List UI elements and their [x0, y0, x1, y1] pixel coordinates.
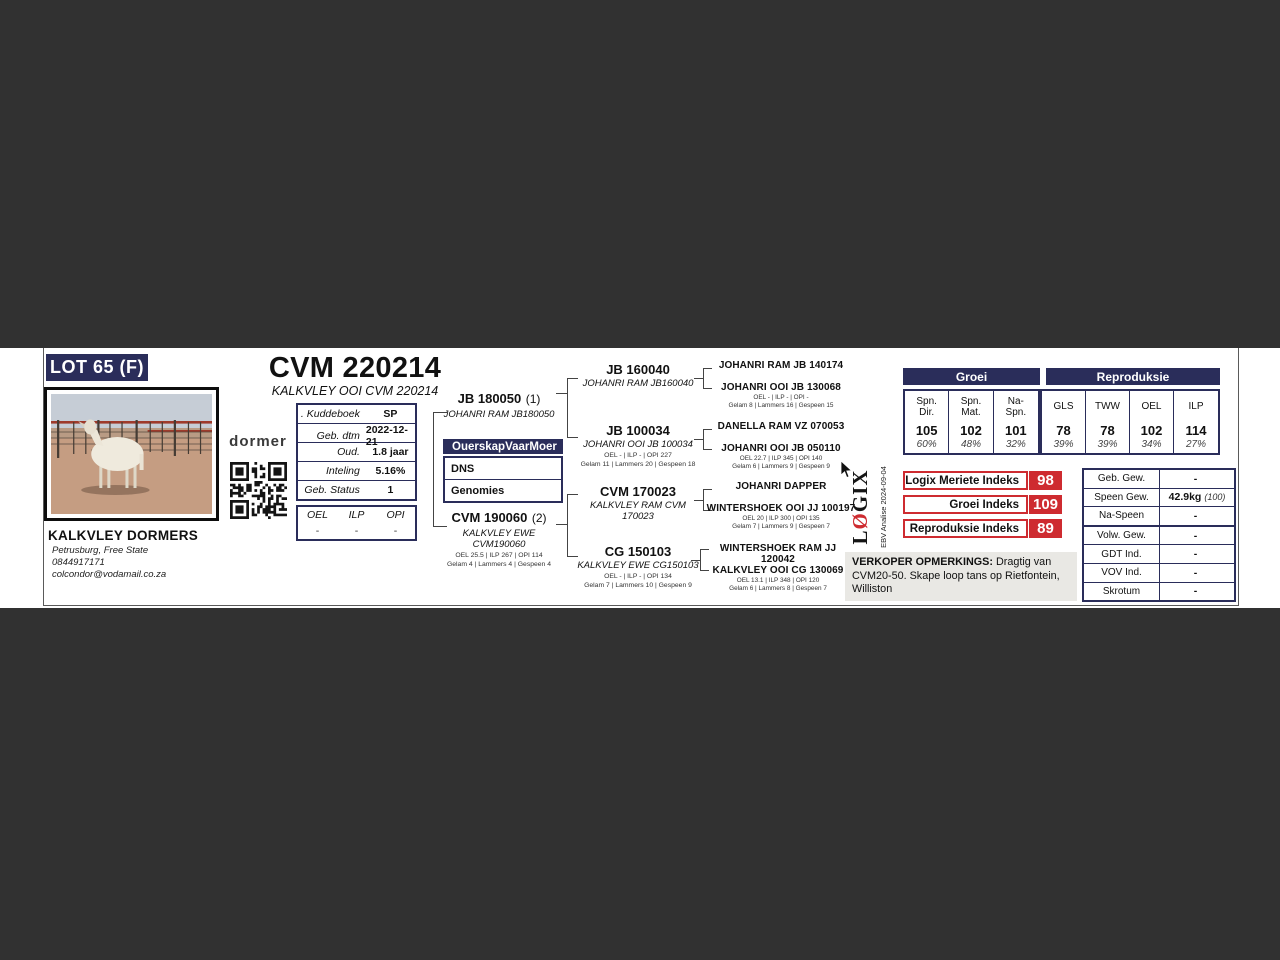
table-row: Speen Gew.42.9kg(100) [1084, 488, 1234, 507]
sire-tag: (1) [526, 392, 541, 406]
oel-ilp-opi-table: OEL ILP OPI - - - [296, 505, 417, 541]
info-value: 5.16% [366, 462, 415, 480]
animal-info-table: . KuddeboekSP Geb. dtm2022-12-21 Oud.1.8… [296, 403, 417, 501]
ancestor-stats-2: Gelam 7 | Lammers 10 | Gespeen 9 [573, 582, 703, 591]
reproduksie-header: Reproduksie [1046, 368, 1220, 385]
ancestor-name: JOHANRI OOI JB 050110 [706, 443, 856, 454]
groei-indeks-label: Groei Indeks [903, 495, 1028, 514]
dam-name: KALKVLEY EWE CVM190060 [435, 528, 563, 550]
parentage-header-vaar: Vaar [505, 441, 529, 453]
ancestor-stats-1: OEL 20 | ILP 300 | OPI 135 [706, 515, 856, 523]
pedigree-gen3-item: DANELLA RAM VZ 070053 [706, 421, 856, 432]
ancestor-name: KALKVLEY EWE CG150103 [573, 560, 703, 571]
ancestor-name: WINTERSHOEK OOI JJ 100197 [706, 503, 856, 514]
info-label: Geb. Status [298, 481, 366, 499]
pedigree-gen2-item: JB 160040 JOHANRI RAM JB160040 [573, 362, 703, 389]
ancestor-stats-2: Gelam 6 | Lammers 8 | Gespeen 7 [703, 585, 853, 593]
ancestor-name: JOHANRI OOI JB 130068 [706, 382, 856, 393]
info-value: SP [366, 405, 415, 423]
ebv-col-ilp: ILP11427% [1174, 391, 1218, 455]
pedigree-gen3-item: JOHANRI OOI JB 050110 OEL 22.7 | ILP 345… [706, 443, 856, 471]
pedigree-dam: CVM 190060 (2) KALKVLEY EWE CVM190060 OE… [435, 509, 563, 569]
ancestor-name: KALKVLEY RAM CVM 170023 [573, 500, 703, 522]
ancestor-id: CG 150103 [573, 544, 703, 559]
pdf-viewer-background: LOT 65 (F) [0, 0, 1280, 960]
page-bottom-edge [43, 605, 1239, 606]
info-label: . Kuddeboek [298, 405, 366, 423]
table-row: Oud.1.8 jaar [298, 442, 415, 461]
pedigree-gen3-item: JOHANRI RAM JB 140174 [706, 360, 856, 371]
ancestor-id: CVM 170023 [573, 484, 703, 499]
ebv-col-na-spn: Na- Spn.10132% [994, 391, 1038, 455]
ancestor-stats-2: Gelam 7 | Lammers 9 | Gespeen 7 [706, 523, 856, 531]
pedigree-gen2-item: CG 150103 KALKVLEY EWE CG150103 OEL - | … [573, 544, 703, 590]
ancestor-stats-2: Gelam 8 | Lammers 16 | Gespeen 15 [706, 402, 856, 410]
info-label: Oud. [298, 443, 366, 461]
opi-header: OPI [376, 507, 415, 523]
dam-id: CVM 190060 [451, 510, 527, 525]
opi-value: - [376, 523, 415, 539]
dormer-logo: dormer [226, 433, 290, 450]
ancestor-id: JB 100034 [573, 423, 703, 438]
dam-stats-1: OEL 25.5 | ILP 267 | OPI 114 [435, 552, 563, 561]
table-row: Geb. Status1 [298, 480, 415, 499]
ilp-header: ILP [337, 507, 376, 523]
info-value: 1.8 jaar [366, 443, 415, 461]
pedigree-gen3-item: WINTERSHOEK RAM JJ 120042 [703, 543, 853, 565]
ebv-analysis-date: EBV Analise 2024-09-04 [876, 462, 890, 552]
breeder-phone: 0844917171 [52, 557, 105, 568]
table-row: Inteling5.16% [298, 461, 415, 480]
dam-stats-2: Gelam 4 | Lammers 4 | Gespeen 4 [435, 561, 563, 570]
breeder-location: Petrusburg, Free State [52, 545, 148, 556]
ancestor-stats-2: Gelam 6 | Lammers 9 | Gespeen 9 [706, 463, 856, 471]
ancestor-name: KALKVLEY OOI CG 130069 [703, 565, 853, 576]
page-right-edge [1238, 348, 1239, 606]
groei-header: Groei [903, 368, 1040, 385]
ebv-col-gls: GLS7839% [1042, 391, 1086, 455]
pedigree-gen2-item: CVM 170023 KALKVLEY RAM CVM 170023 [573, 484, 703, 522]
ancestor-name: WINTERSHOEK RAM JJ 120042 [703, 543, 853, 565]
table-row: OEL ILP OPI [298, 507, 415, 523]
catalog-page: LOT 65 (F) [0, 348, 1280, 608]
ancestor-name: JOHANRI RAM JB160040 [573, 378, 703, 389]
sheep-photo [51, 394, 212, 514]
pedigree-gen3-item: JOHANRI OOI JB 130068 OEL - | ILP - | OP… [706, 382, 856, 410]
ebv-col-spn-mat: Spn. Mat.10248% [949, 391, 993, 455]
parentage-row-genomies: Genomies [445, 479, 561, 501]
table-row: Skrotum- [1084, 582, 1234, 601]
breeder-email: colcondor@vodamail.co.za [52, 569, 166, 580]
ebv-col-tww: TWW7839% [1086, 391, 1130, 455]
ancestor-stats-1: OEL 13.1 | ILP 348 | OPI 120 [703, 577, 853, 585]
weights-table: Geb. Gew.- Speen Gew.42.9kg(100) Na-Spee… [1082, 468, 1236, 602]
pedigree-gen3-item: KALKVLEY OOI CG 130069 OEL 13.1 | ILP 34… [703, 565, 853, 593]
table-row: GDT Ind.- [1084, 544, 1234, 563]
ancestor-stats-2: Gelam 11 | Lammers 20 | Gespeen 18 [573, 461, 703, 470]
ancestor-stats: OEL - | ILP - | OPI 134Gelam 7 | Lammers… [573, 573, 703, 590]
photo-frame [44, 387, 219, 521]
dam-tag: (2) [532, 511, 547, 525]
mouse-cursor [840, 461, 853, 479]
lot-badge: LOT 65 (F) [46, 354, 148, 381]
table-row: Na-Speen- [1084, 506, 1234, 525]
parentage-table: DNS Genomies [443, 456, 563, 503]
ancestor-name: JOHANRI OOI JB 100034 [573, 439, 703, 450]
logix-meriete-indeks-label: Logix Meriete Indeks [903, 471, 1028, 490]
ancestor-name: JOHANRI DAPPER [706, 481, 856, 492]
logix-letter-o: Ø [848, 512, 873, 529]
sire-id: JB 180050 [458, 391, 522, 406]
ancestor-name: DANELLA RAM VZ 070053 [706, 421, 856, 432]
table-row: Geb. dtm2022-12-21 [298, 423, 415, 442]
table-row: . KuddeboekSP [298, 405, 415, 423]
pedigree-gen3-item: JOHANRI DAPPER [706, 481, 856, 492]
ancestor-id: JB 160040 [573, 362, 703, 377]
table-row: Volw. Gew.- [1084, 525, 1234, 545]
dam-stats: OEL 25.5 | ILP 267 | OPI 114Gelam 4 | La… [435, 552, 563, 569]
table-row: VOV Ind.- [1084, 563, 1234, 582]
groei-indeks-value: 109 [1029, 495, 1062, 514]
reproduksie-indeks-label: Reproduksie Indeks [903, 519, 1028, 538]
ebv-col-spn-dir: Spn. Dir.10560% [905, 391, 949, 455]
ilp-value: - [337, 523, 376, 539]
reproduksie-indeks-value: 89 [1029, 519, 1062, 538]
qr-code [230, 462, 287, 519]
animal-full-name: KALKVLEY OOI CVM 220214 [255, 384, 455, 398]
pedigree-gen3-item: WINTERSHOEK OOI JJ 100197 OEL 20 | ILP 3… [706, 503, 856, 531]
parentage-header-ouerskap: Ouerskap [452, 441, 505, 453]
sire-name: JOHANRI RAM JB180050 [435, 409, 563, 420]
ancestor-stats-1: OEL 22.7 | ILP 345 | OPI 140 [706, 455, 856, 463]
logix-letter-l: L [848, 530, 873, 545]
oel-header: OEL [298, 507, 337, 523]
reproduksie-ebv-table: GLS7839% TWW7839% OEL10234% ILP11427% [1040, 389, 1220, 455]
table-row: - - - [298, 523, 415, 539]
pedigree-sire: JB 180050 (1) JOHANRI RAM JB180050 [435, 390, 563, 420]
ancestor-stats: OEL - | ILP - | OPI 227Gelam 11 | Lammer… [573, 452, 703, 469]
seller-remarks-title: VERKOPER OPMERKINGS: [852, 556, 993, 568]
logix-meriete-indeks-value: 98 [1029, 471, 1062, 490]
ancestor-name: JOHANRI RAM JB 140174 [706, 360, 856, 371]
animal-id-title: CVM 220214 [255, 352, 455, 385]
parentage-row-dns: DNS [445, 458, 561, 479]
pedigree-gen2-item: JB 100034 JOHANRI OOI JB 100034 OEL - | … [573, 423, 703, 469]
ancestor-stats-1: OEL - | ILP - | OPI 227 [573, 452, 703, 461]
ancestor-stats-1: OEL - | ILP - | OPI 134 [573, 573, 703, 582]
parentage-header-moer: Moer [529, 441, 556, 453]
table-row: Geb. Gew.- [1084, 470, 1234, 488]
parentage-header: Ouerskap Vaar Moer [443, 439, 563, 454]
ancestor-stats-1: OEL - | ILP - | OPI - [706, 394, 856, 402]
ebv-col-oel: OEL10234% [1130, 391, 1174, 455]
seller-remarks: VERKOPER OPMERKINGS: Dragtig van CVM20-5… [845, 552, 1077, 601]
info-value: 1 [366, 481, 415, 499]
breeder-name: KALKVLEY DORMERS [48, 528, 198, 543]
info-label: Inteling [298, 462, 366, 480]
oel-value: - [298, 523, 337, 539]
groei-ebv-table: Spn. Dir.10560% Spn. Mat.10248% Na- Spn.… [903, 389, 1040, 455]
